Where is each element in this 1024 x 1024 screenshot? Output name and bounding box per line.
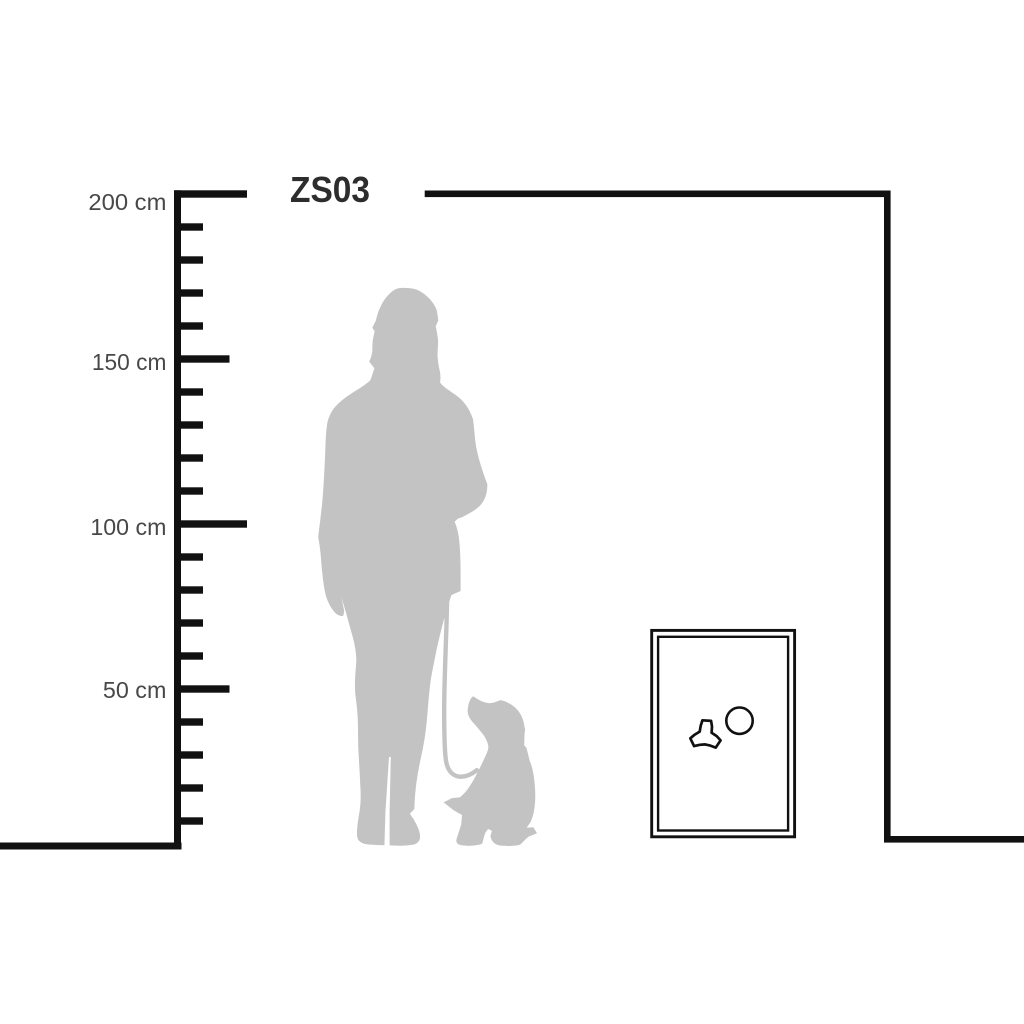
svg-text:100 cm: 100 cm xyxy=(90,514,166,540)
svg-text:150 cm: 150 cm xyxy=(92,349,167,375)
svg-text:ZS03: ZS03 xyxy=(290,169,370,210)
svg-text:50 cm: 50 cm xyxy=(103,677,167,703)
svg-text:200 cm: 200 cm xyxy=(88,189,166,215)
